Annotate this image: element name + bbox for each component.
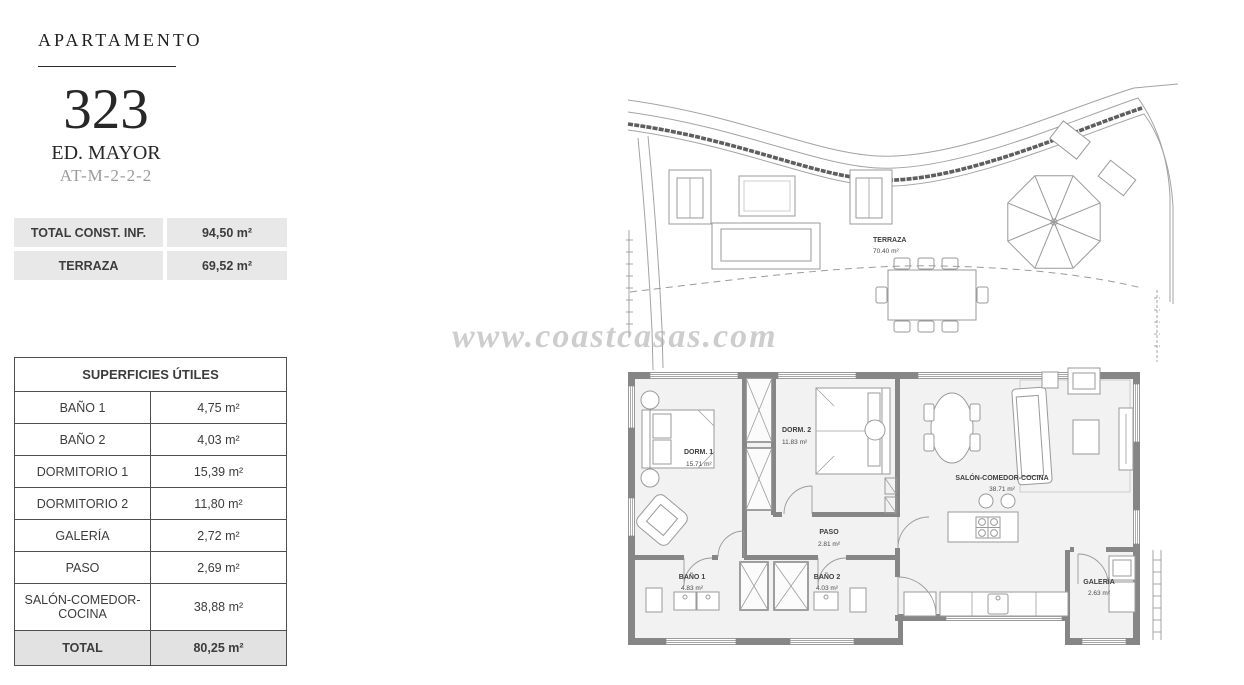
dining-table — [931, 393, 973, 463]
apartment-number: 323 — [30, 80, 182, 140]
summary-value: 69,52 m² — [167, 251, 287, 280]
floorplan-panel: TERRAZA 70.40 m² DORM. 1 15.71 m² DORM. … — [622, 80, 1242, 680]
room-label-bano2: BAÑO 2 — [814, 572, 841, 581]
nightstand — [641, 469, 659, 487]
unit-code: AT-M-2-2-2 — [30, 166, 182, 186]
room-area-salon: 38.71 m² — [989, 486, 1015, 493]
total-value: 80,25 m² — [151, 631, 287, 666]
shower — [740, 562, 808, 610]
room-label-galeria: GALERÍA — [1083, 577, 1115, 586]
room-area-galeria: 2.63 m² — [1088, 590, 1111, 597]
row-label: DORMITORIO 2 — [15, 488, 151, 520]
cooktop — [976, 517, 1000, 538]
total-label: TOTAL — [15, 631, 151, 666]
room-label-dorm2: DORM. 2 — [782, 427, 811, 434]
row-label: GALERÍA — [15, 520, 151, 552]
side-table — [739, 176, 795, 216]
building-name: ED. MAYOR — [30, 142, 182, 165]
surfaces-table: SUPERFICIES ÚTILES BAÑO 1 4,75 m² BAÑO 2… — [14, 357, 287, 666]
summary-label: TOTAL CONST. INF. — [14, 218, 163, 247]
row-label: BAÑO 2 — [15, 424, 151, 456]
table-row: BAÑO 1 4,75 m² — [15, 392, 287, 424]
table-row: SALÓN-COMEDOR-COCINA 38,88 m² — [15, 584, 287, 631]
room-area-dorm2: 11.83 m² — [782, 439, 808, 446]
row-value: 4,03 m² — [151, 424, 287, 456]
summary-value: 94,50 m² — [167, 218, 287, 247]
room-label-dorm1: DORM. 1 — [684, 449, 713, 456]
room-area-bano2: 4.03 m² — [816, 585, 839, 592]
room-area-bano1: 4.83 m² — [681, 585, 704, 592]
table-total-row: TOTAL 80,25 m² — [15, 631, 287, 666]
table-header-row: SUPERFICIES ÚTILES — [15, 358, 287, 392]
summary-label: TERRAZA — [14, 251, 163, 280]
row-label: BAÑO 1 — [15, 392, 151, 424]
brand-header: APARTAMENTO — [38, 30, 203, 67]
sun-lounger — [1098, 160, 1136, 195]
kitchen-counter — [940, 592, 1068, 616]
surfaces-title: SUPERFICIES ÚTILES — [15, 358, 287, 392]
row-value: 15,39 m² — [151, 456, 287, 488]
row-label: PASO — [15, 552, 151, 584]
room-label-paso: PASO — [819, 529, 839, 536]
stool — [979, 494, 993, 508]
room-area-terraza: 70.40 m² — [873, 248, 899, 255]
row-value: 2,72 m² — [151, 520, 287, 552]
room-label-bano1: BAÑO 1 — [679, 572, 706, 581]
terrace-dining-table — [876, 258, 988, 332]
table-row: DORMITORIO 2 11,80 m² — [15, 488, 287, 520]
room-area-paso: 2.81 m² — [818, 541, 841, 548]
row-label: SALÓN-COMEDOR-COCINA — [15, 584, 151, 631]
room-label-terraza: TERRAZA — [873, 237, 906, 244]
table-row: GALERÍA 2,72 m² — [15, 520, 287, 552]
summary-row: TERRAZA 69,52 m² — [14, 251, 287, 280]
sun-lounger — [1050, 121, 1090, 159]
table-row: DORMITORIO 1 15,39 m² — [15, 456, 287, 488]
nightstand — [865, 420, 885, 440]
parasol — [1008, 176, 1100, 268]
room-label-salon: SALÓN-COMEDOR-COCINA — [955, 473, 1048, 482]
row-label: DORMITORIO 1 — [15, 456, 151, 488]
floorplan-svg: TERRAZA 70.40 m² DORM. 1 15.71 m² DORM. … — [622, 80, 1242, 680]
summary-table: TOTAL CONST. INF. 94,50 m² TERRAZA 69,52… — [14, 218, 287, 284]
side-table — [1042, 372, 1058, 388]
coffee-table — [1073, 420, 1099, 454]
row-value: 2,69 m² — [151, 552, 287, 584]
table-row: BAÑO 2 4,03 m² — [15, 424, 287, 456]
outdoor-sofa — [712, 223, 820, 269]
sofa — [1012, 387, 1053, 485]
toilet — [646, 588, 662, 612]
appliance — [1109, 582, 1135, 612]
row-value: 38,88 m² — [151, 584, 287, 631]
page-title: APARTAMENTO — [38, 30, 203, 51]
row-value: 11,80 m² — [151, 488, 287, 520]
stool — [1001, 494, 1015, 508]
toilet — [850, 588, 866, 612]
table-row: PASO 2,69 m² — [15, 552, 287, 584]
bed — [650, 410, 714, 468]
info-panel: APARTAMENTO 323 ED. MAYOR AT-M-2-2-2 TOT… — [0, 0, 300, 682]
room-area-dorm1: 15.71 m² — [686, 461, 712, 468]
title-divider — [38, 66, 176, 67]
bed-headboard — [642, 410, 650, 468]
row-value: 4,75 m² — [151, 392, 287, 424]
summary-row: TOTAL CONST. INF. 94,50 m² — [14, 218, 287, 247]
nightstand — [641, 391, 659, 409]
apartment-identity: 323 ED. MAYOR AT-M-2-2-2 — [30, 80, 182, 186]
terrace-furniture — [630, 121, 1142, 332]
